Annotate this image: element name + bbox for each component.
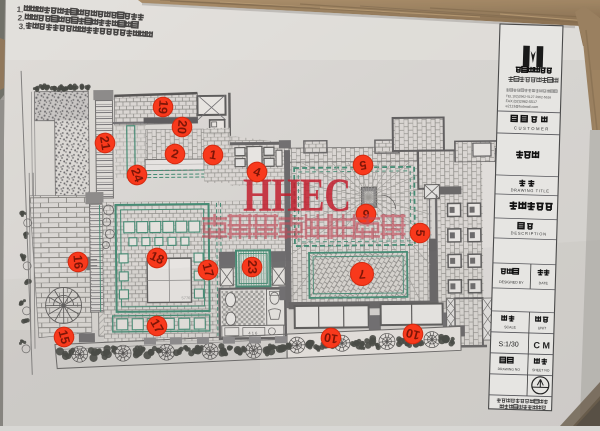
svg-text:DATE: DATE bbox=[539, 281, 549, 285]
svg-text:23: 23 bbox=[245, 260, 259, 274]
svg-text:UNIT: UNIT bbox=[538, 326, 547, 330]
svg-text:DRAWING NO: DRAWING NO bbox=[498, 367, 521, 372]
svg-text:SCALE: SCALE bbox=[504, 325, 517, 329]
svg-text:S:1/30: S:1/30 bbox=[498, 341, 519, 349]
svg-text:7: 7 bbox=[358, 267, 366, 282]
svg-text:21: 21 bbox=[97, 135, 113, 151]
svg-text:20: 20 bbox=[174, 119, 189, 134]
svg-text:5: 5 bbox=[413, 229, 428, 237]
svg-text:C M: C M bbox=[533, 340, 550, 350]
svg-text:10: 10 bbox=[323, 330, 339, 346]
svg-text:DESIGNED BY: DESIGNED BY bbox=[499, 280, 524, 285]
svg-text:CUSTOMER: CUSTOMER bbox=[514, 125, 550, 131]
svg-text:SHEET NO: SHEET NO bbox=[532, 368, 550, 373]
svg-text:16: 16 bbox=[70, 254, 85, 269]
svg-text:19: 19 bbox=[155, 99, 170, 114]
